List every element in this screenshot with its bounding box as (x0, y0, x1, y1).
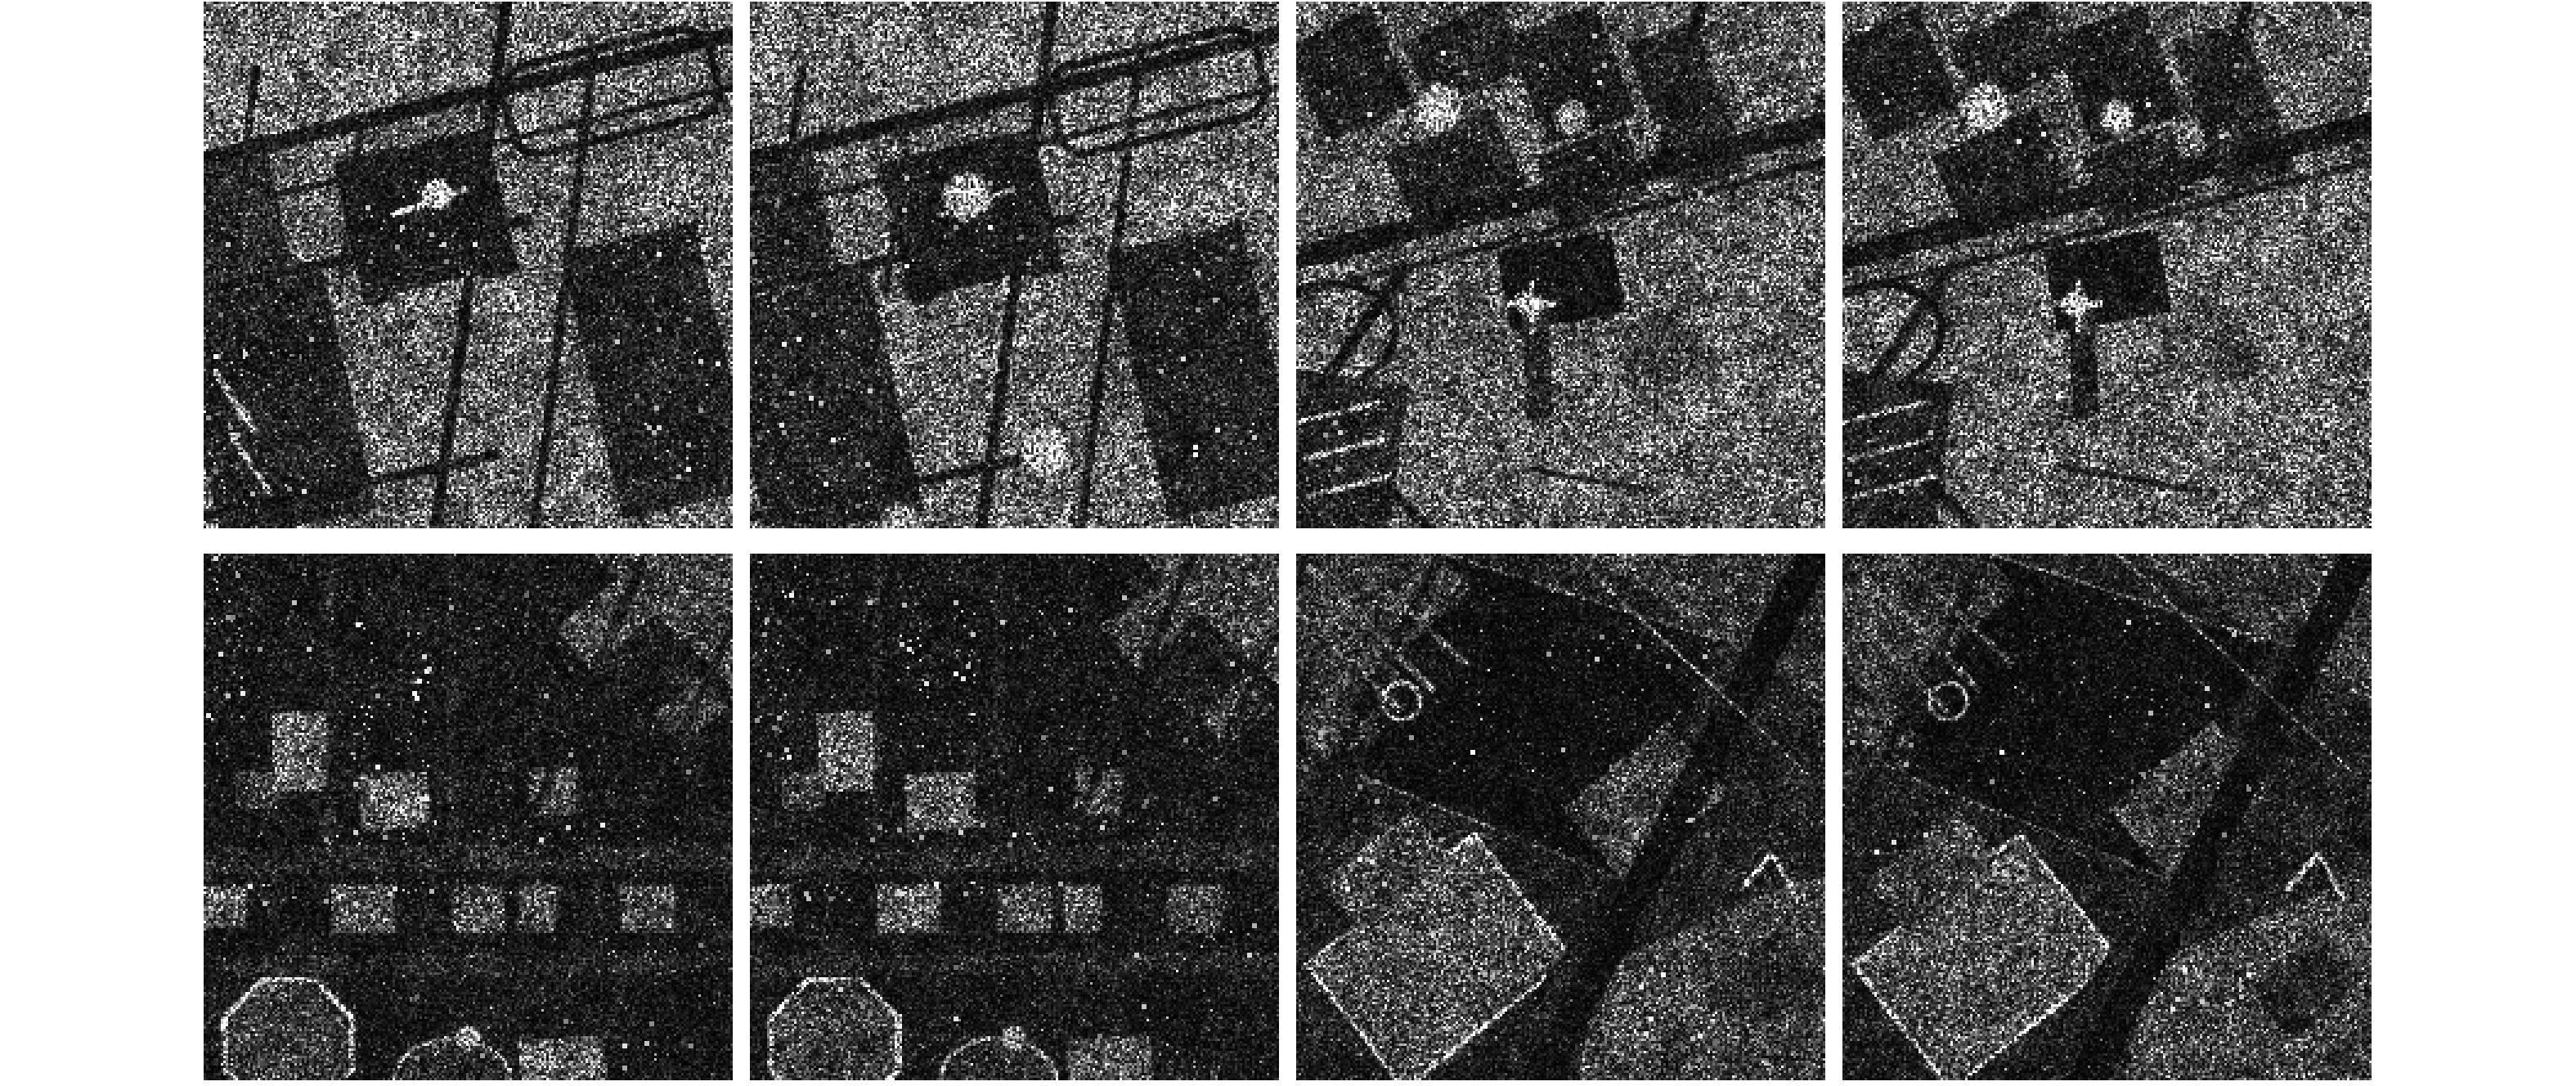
sar-image-r2c2 (750, 554, 1279, 1080)
sar-image-r1c2 (750, 2, 1279, 528)
sar-image-grid (0, 0, 2576, 1086)
sar-image-r2c4 (1842, 554, 2372, 1080)
sar-image-r1c4 (1842, 2, 2372, 528)
sar-image-r1c3 (1296, 2, 1825, 528)
sar-image-r2c3 (1296, 554, 1825, 1080)
sar-image-r1c1 (204, 2, 733, 528)
sar-image-r2c1 (204, 554, 733, 1080)
